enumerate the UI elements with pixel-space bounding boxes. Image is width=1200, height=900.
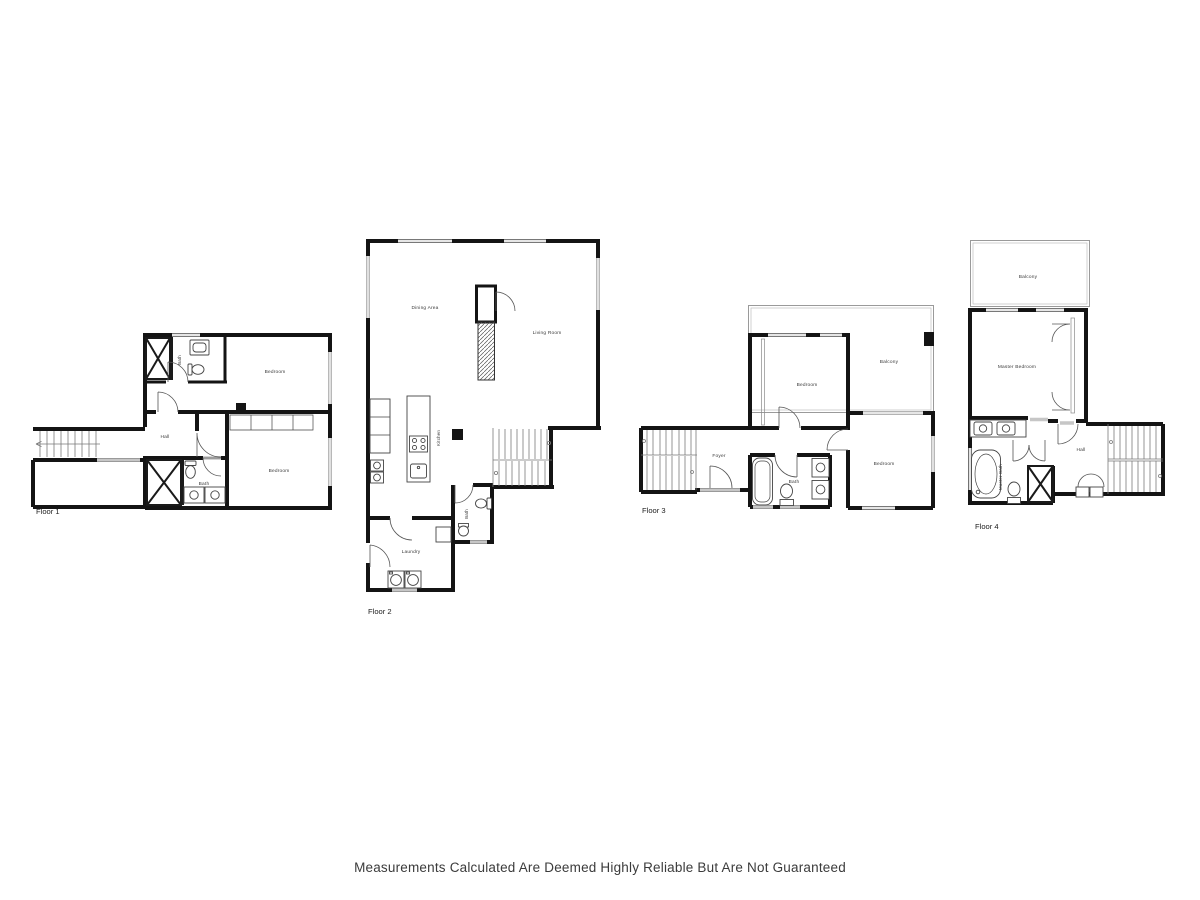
closet-x [1028,466,1053,502]
stairs [641,430,697,490]
door-arcs [1013,324,1104,487]
closet-x [146,338,181,505]
closet-front [1071,318,1075,413]
chimney [477,286,496,380]
room-label-foyer: Foyer [712,453,725,459]
room-label-kitchen: Kitchen [436,430,441,446]
floor1-walls [33,333,332,508]
room-label-hall: Hall [1076,447,1085,453]
fireplace [236,403,246,412]
floorplan-canvas: Bath Bedroom Hall Bath Bedroom Floor 1 [0,0,1200,900]
stairs [1108,424,1163,494]
room-label-bath-lower: Bath [199,481,210,487]
room-label-balcony: Balcony [1019,274,1038,280]
floor-2-label: Floor 2 [368,607,392,616]
bath-fixtures [184,340,225,503]
room-label-bedroom-lower: Bedroom [874,461,895,467]
kitchen-counter [370,399,390,483]
room-label-bath-upper: Bath [177,355,182,365]
closet-shelves [230,415,313,430]
bath-fixtures [970,420,1026,504]
wall-post [924,332,934,346]
room-label-dining: Dining Area [412,305,439,311]
balcony-rail [971,241,1090,307]
room-label-bath: Bath [464,509,469,519]
room-label-bath: Bath [789,479,800,485]
room-label-bedroom-upper: Bedroom [797,382,818,388]
room-label-laundry: Laundry [402,549,421,555]
room-label-hall: Hall [160,434,169,440]
floor-4-label: Floor 4 [975,522,999,531]
disclaimer-text: Measurements Calculated Are Deemed Highl… [0,860,1200,875]
laundry-fixtures [388,527,451,588]
floor-3-plan: Bedroom Balcony Foyer Bath Bedroom Floor… [630,295,945,520]
room-label-master-bath: Master Bath [998,464,1003,490]
floor-3-label: Floor 3 [642,506,666,515]
kitchen-vent [452,429,463,440]
stairs [36,431,100,457]
room-label-master-bedroom: Master Bedroom [998,364,1036,370]
room-label-bedroom-upper: Bedroom [265,369,286,375]
room-label-balcony: Balcony [880,359,899,365]
floor-2-plan: Dining Area Living Room Kitchen Bath Lau… [360,235,615,620]
stairs [493,428,552,487]
room-label-living: Living Room [533,330,562,336]
balcony-rail [749,306,934,413]
floor-1-plan: Bath Bedroom Hall Bath Bedroom Floor 1 [30,325,340,520]
floor-1-label: Floor 1 [36,507,60,516]
room-label-bedroom-lower: Bedroom [269,468,290,474]
kitchen-island [407,396,430,482]
floor-4-plan: Balcony Master Bedroom Master Bath Hall … [960,235,1170,535]
